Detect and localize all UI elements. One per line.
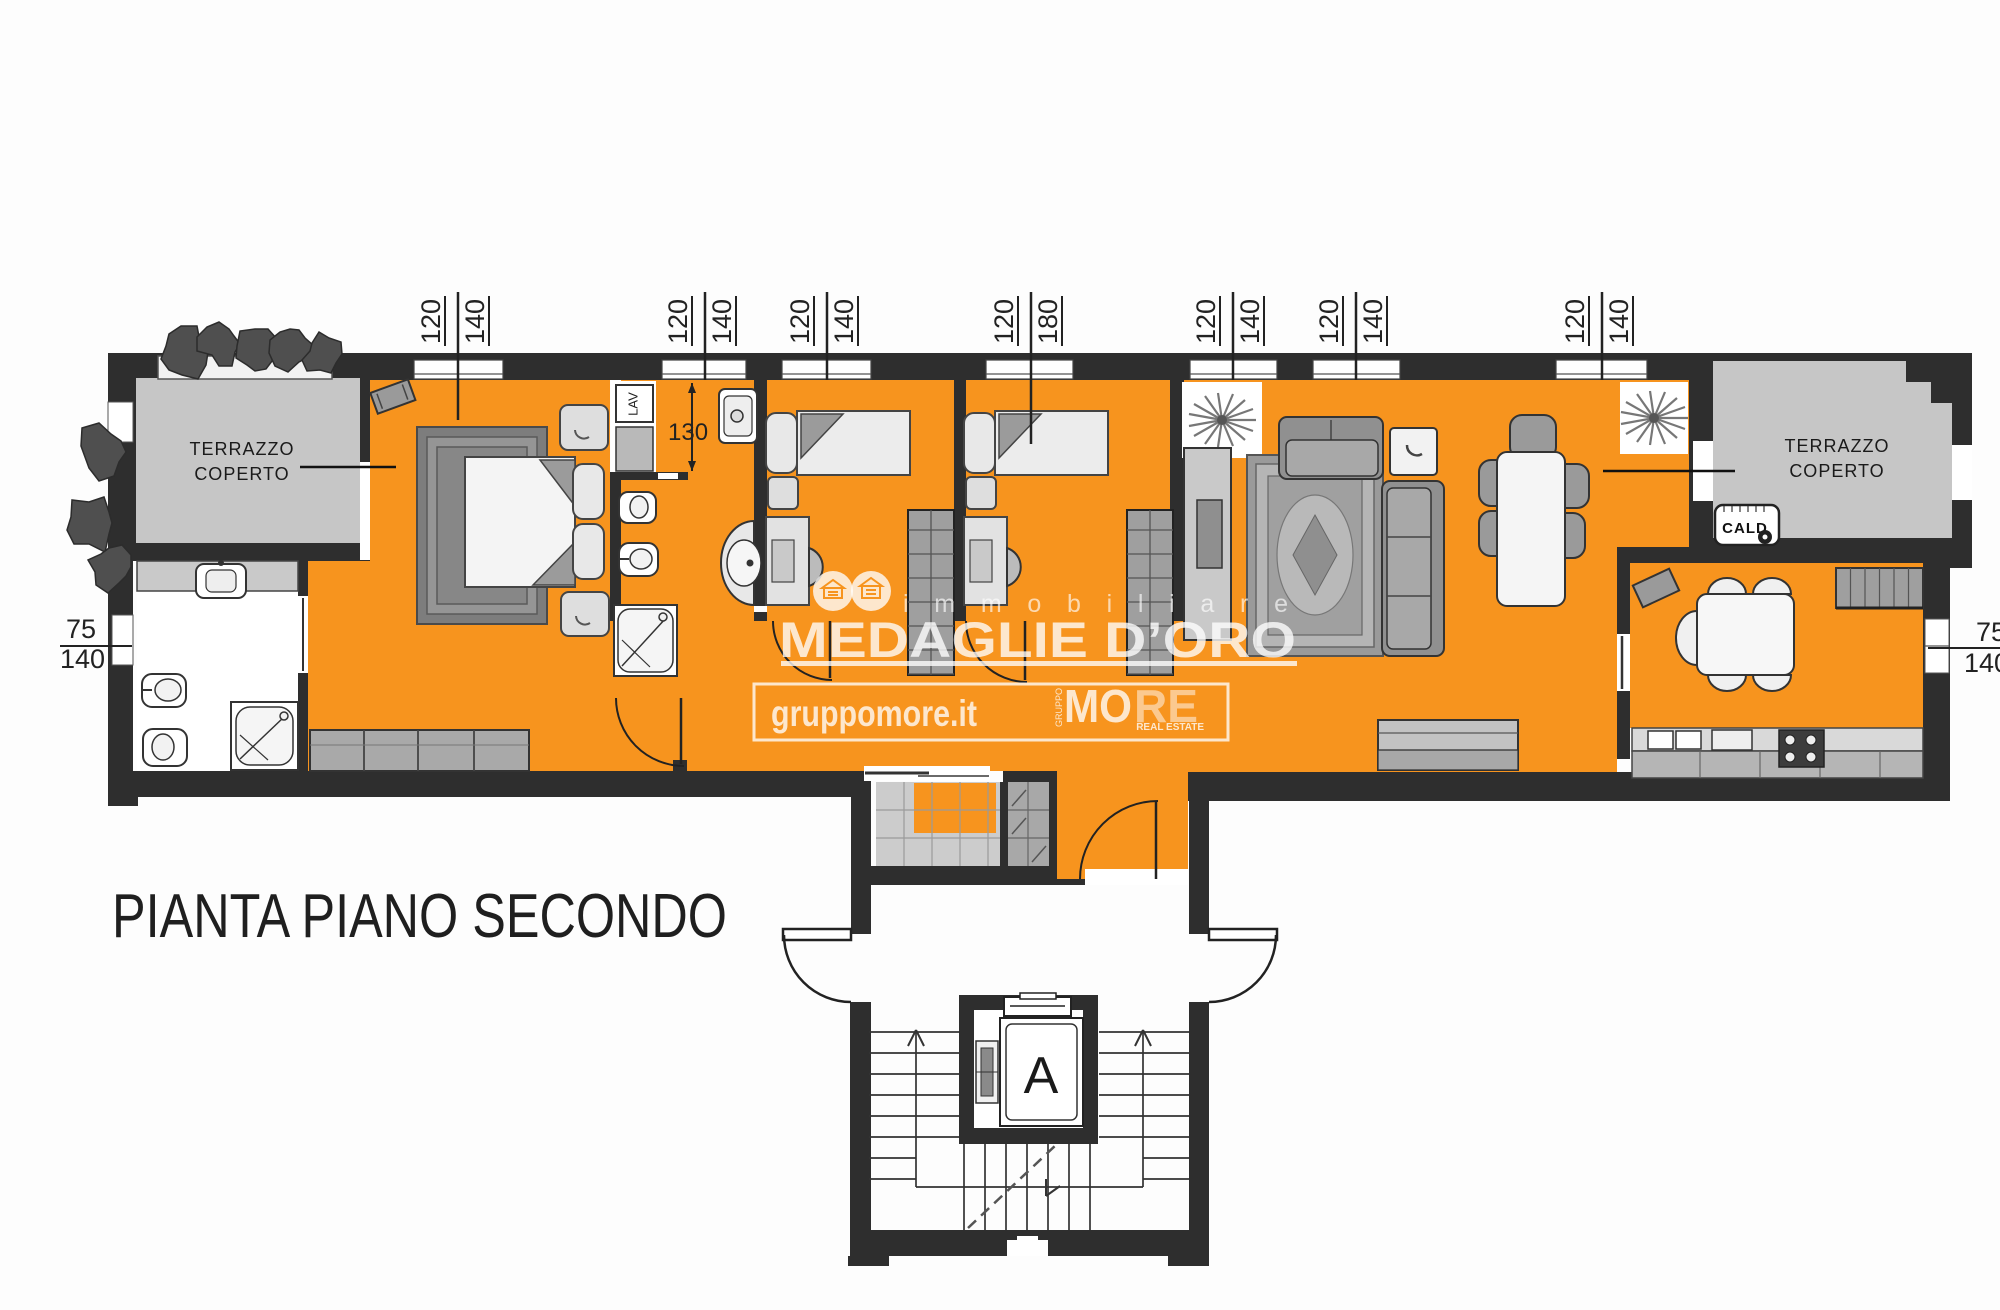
svg-text:140: 140 [60, 644, 105, 674]
svg-text:140: 140 [829, 299, 859, 344]
svg-text:180: 180 [1033, 299, 1063, 344]
svg-text:75: 75 [1976, 617, 2000, 647]
svg-text:REAL ESTATE: REAL ESTATE [1136, 722, 1204, 733]
svg-text:120: 120 [1314, 299, 1344, 344]
svg-text:140: 140 [707, 299, 737, 344]
svg-text:MEDAGLIE D’ORO: MEDAGLIE D’ORO [779, 612, 1296, 668]
svg-text:120: 120 [1191, 299, 1221, 344]
svg-text:GRUPPO: GRUPPO [1054, 688, 1064, 727]
svg-text:COPERTO: COPERTO [194, 464, 289, 484]
svg-text:A: A [1024, 1047, 1059, 1105]
svg-text:TERRAZZO: TERRAZZO [190, 439, 295, 459]
svg-text:120: 120 [785, 299, 815, 344]
svg-text:PIANTA PIANO SECONDO: PIANTA PIANO SECONDO [112, 882, 727, 951]
svg-text:120: 120 [663, 299, 693, 344]
svg-text:MO: MO [1064, 680, 1132, 732]
svg-text:COPERTO: COPERTO [1789, 461, 1884, 481]
svg-text:130: 130 [668, 419, 708, 446]
svg-text:LAV: LAV [625, 392, 640, 416]
svg-text:140: 140 [1964, 648, 2000, 678]
svg-text:120: 120 [1560, 299, 1590, 344]
svg-text:TERRAZZO: TERRAZZO [1785, 436, 1890, 456]
svg-text:140: 140 [1358, 299, 1388, 344]
svg-text:140: 140 [1604, 299, 1634, 344]
svg-text:140: 140 [460, 299, 490, 344]
svg-text:120: 120 [989, 299, 1019, 344]
svg-text:75: 75 [66, 614, 96, 644]
svg-text:140: 140 [1235, 299, 1265, 344]
svg-text:120: 120 [416, 299, 446, 344]
svg-text:gruppomore.it: gruppomore.it [771, 693, 977, 734]
